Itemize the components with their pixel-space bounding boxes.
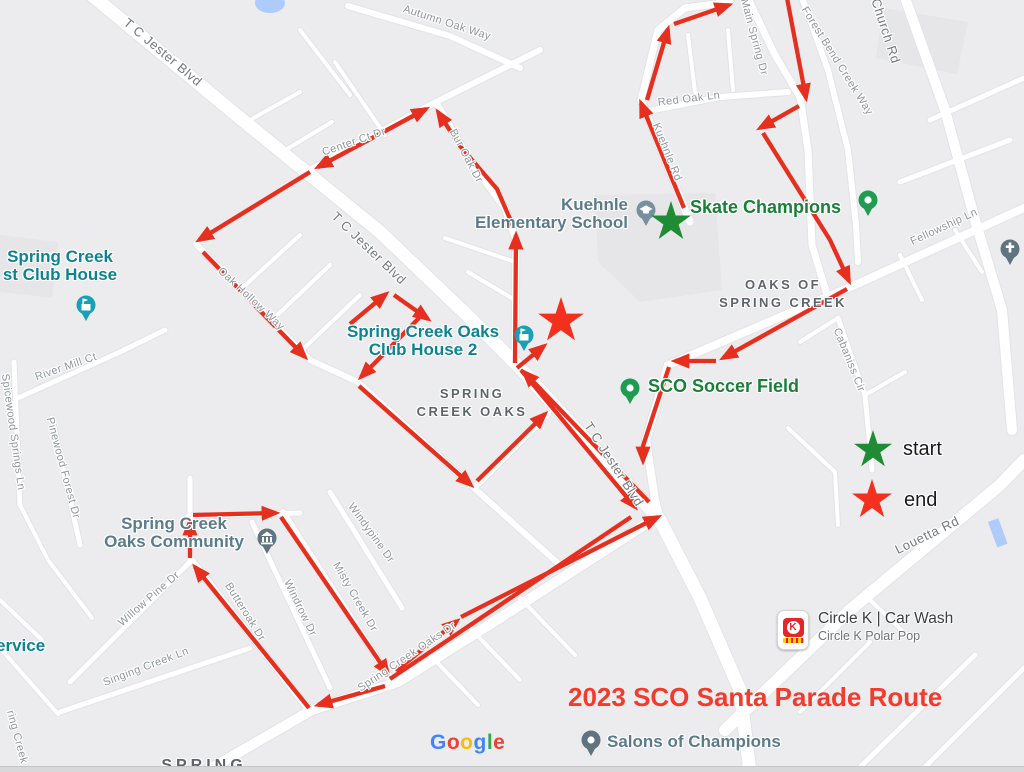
road — [445, 238, 515, 262]
google-logo-letter: g — [474, 731, 487, 754]
road — [788, 428, 838, 525]
route-end-star — [538, 297, 584, 340]
road-casings — [0, 0, 1024, 772]
route-segment — [390, 517, 631, 679]
route-segment — [361, 318, 419, 377]
salons-pin[interactable] — [582, 731, 601, 757]
road — [14, 362, 20, 505]
road — [18, 330, 165, 398]
roads — [0, 0, 1024, 772]
road — [430, 655, 478, 705]
google-logo[interactable]: Google — [430, 731, 505, 755]
road — [800, 318, 838, 342]
road — [330, 492, 402, 608]
route-title: 2023 SCO Santa Parade Route — [568, 682, 942, 713]
route-segment — [193, 513, 276, 515]
road — [250, 92, 300, 120]
skate-champions-pin[interactable] — [859, 191, 878, 217]
route-segment — [281, 517, 388, 674]
google-logo-letter: o — [447, 731, 460, 754]
road — [643, 92, 788, 112]
club-house-1-pin[interactable] — [77, 296, 96, 322]
soccer-field-pin[interactable] — [621, 379, 640, 405]
road — [335, 62, 385, 135]
route-segment — [521, 370, 635, 507]
road — [728, 30, 733, 90]
road — [348, 6, 520, 68]
building-patch — [0, 235, 58, 298]
pool — [988, 518, 1008, 547]
road — [474, 414, 548, 488]
road — [20, 505, 92, 618]
road — [282, 122, 332, 152]
road — [470, 628, 520, 680]
road — [468, 272, 515, 300]
road — [60, 648, 250, 712]
road-casing — [788, 428, 838, 525]
circle-k-place-card[interactable]: K Circle K | Car Wash Circle K Polar Pop — [777, 610, 953, 650]
map-screenshot: T C Jester BlvdAutumn Oak WayCenter Ct D… — [0, 0, 1024, 772]
road — [0, 600, 42, 640]
route-segment — [195, 567, 309, 708]
community-pin[interactable] — [258, 529, 277, 555]
road — [52, 418, 80, 545]
building-patch — [595, 193, 722, 302]
google-logo-letter: o — [460, 731, 473, 754]
route-segment — [515, 235, 516, 363]
road — [300, 30, 350, 95]
road — [855, 655, 975, 772]
route-segment — [394, 295, 428, 319]
road — [865, 372, 905, 395]
road — [70, 562, 190, 682]
circle-k-title: Circle K | Car Wash — [818, 610, 953, 628]
route-segment — [477, 414, 545, 481]
route-segment — [199, 172, 310, 240]
google-logo-letter: G — [430, 731, 447, 754]
route-segment — [461, 517, 658, 617]
road — [240, 235, 300, 290]
route-segment — [760, 106, 799, 128]
church-pin[interactable] — [1001, 240, 1020, 266]
route-segment — [517, 346, 544, 368]
road — [520, 598, 575, 655]
pond — [255, 0, 285, 13]
route-segment — [641, 103, 684, 208]
circle-k-subtitle: Circle K Polar Pop — [818, 629, 953, 643]
route-segment — [359, 386, 471, 485]
map-canvas[interactable] — [0, 0, 1024, 772]
road — [270, 265, 330, 322]
window-bottom-edge — [0, 766, 1024, 772]
google-logo-letter: e — [493, 731, 505, 754]
circle-k-icon: K — [777, 610, 809, 650]
road — [0, 648, 58, 714]
legend-end-star — [852, 479, 892, 517]
